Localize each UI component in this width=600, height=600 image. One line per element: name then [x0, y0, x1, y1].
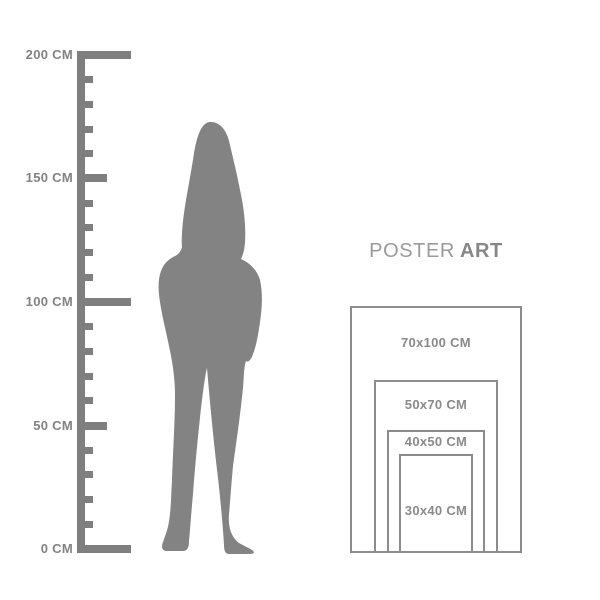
ruler-tick-100cm [85, 298, 131, 306]
ruler-tick-90cm [85, 323, 93, 330]
ruler-label-50cm: 50 CM [3, 417, 73, 435]
chart-title: POSTERART [326, 240, 546, 263]
ruler-tick-120cm [85, 249, 93, 256]
woman-silhouette-shape [159, 122, 262, 554]
poster-size-label-30x40: 30x40 CM [356, 503, 516, 519]
ruler-tick-20cm [85, 496, 93, 503]
ruler-tick-150cm [85, 174, 107, 182]
poster-size-label-50x70: 50x70 CM [356, 397, 516, 413]
poster-size-label-70x100: 70x100 CM [356, 335, 516, 351]
poster-size-guide-diagram: 200 CM150 CM100 CM50 CM0 CM POSTERART 70… [0, 0, 600, 600]
poster-size-label-40x50: 40x50 CM [356, 434, 516, 450]
ruler-tick-60cm [85, 397, 93, 404]
ruler-label-0cm: 0 CM [3, 540, 73, 558]
ruler-tick-110cm [85, 274, 93, 281]
ruler-tick-70cm [85, 373, 93, 380]
ruler-tick-30cm [85, 471, 93, 478]
ruler-tick-180cm [85, 101, 93, 108]
ruler-label-100cm: 100 CM [3, 293, 73, 311]
ruler-bar [77, 51, 85, 553]
ruler-tick-140cm [85, 200, 93, 207]
ruler-label-150cm: 150 CM [3, 169, 73, 187]
ruler-tick-40cm [85, 447, 93, 454]
ruler-tick-170cm [85, 126, 93, 133]
chart-title-regular: POSTER [369, 240, 455, 262]
ruler-tick-80cm [85, 348, 93, 355]
ruler-tick-10cm [85, 521, 93, 528]
ruler-tick-0cm [85, 545, 131, 553]
ruler-tick-200cm [85, 51, 131, 59]
ruler-tick-50cm [85, 422, 107, 430]
ruler-tick-190cm [85, 76, 93, 83]
ruler-tick-130cm [85, 224, 93, 231]
ruler-label-200cm: 200 CM [3, 46, 73, 64]
chart-title-bold: ART [460, 240, 503, 262]
ruler-tick-160cm [85, 150, 93, 157]
